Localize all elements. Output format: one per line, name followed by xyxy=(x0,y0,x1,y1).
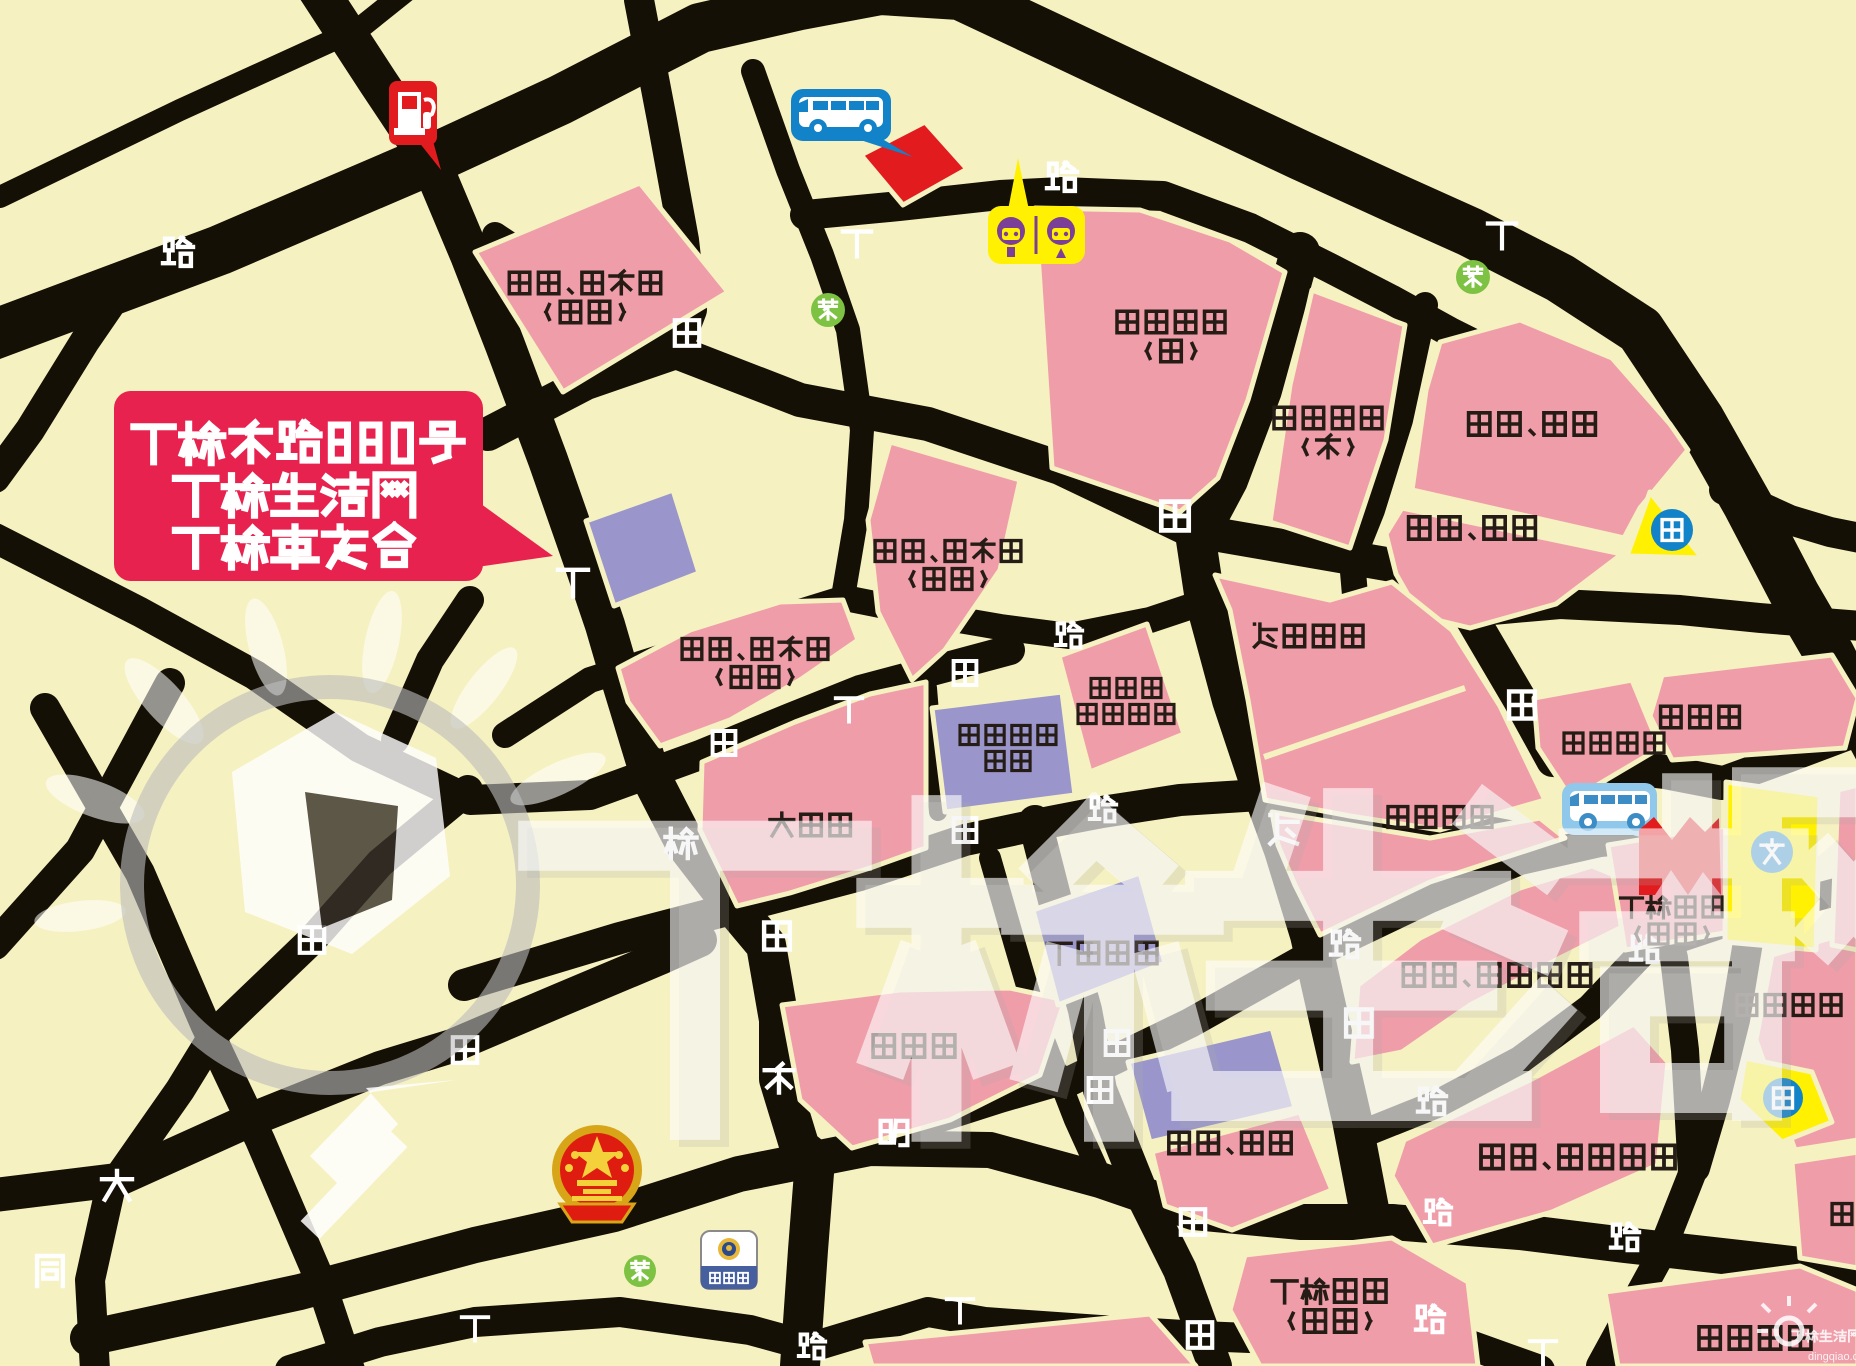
svg-text:dingqiao.cc: dingqiao.cc xyxy=(1808,1351,1856,1363)
